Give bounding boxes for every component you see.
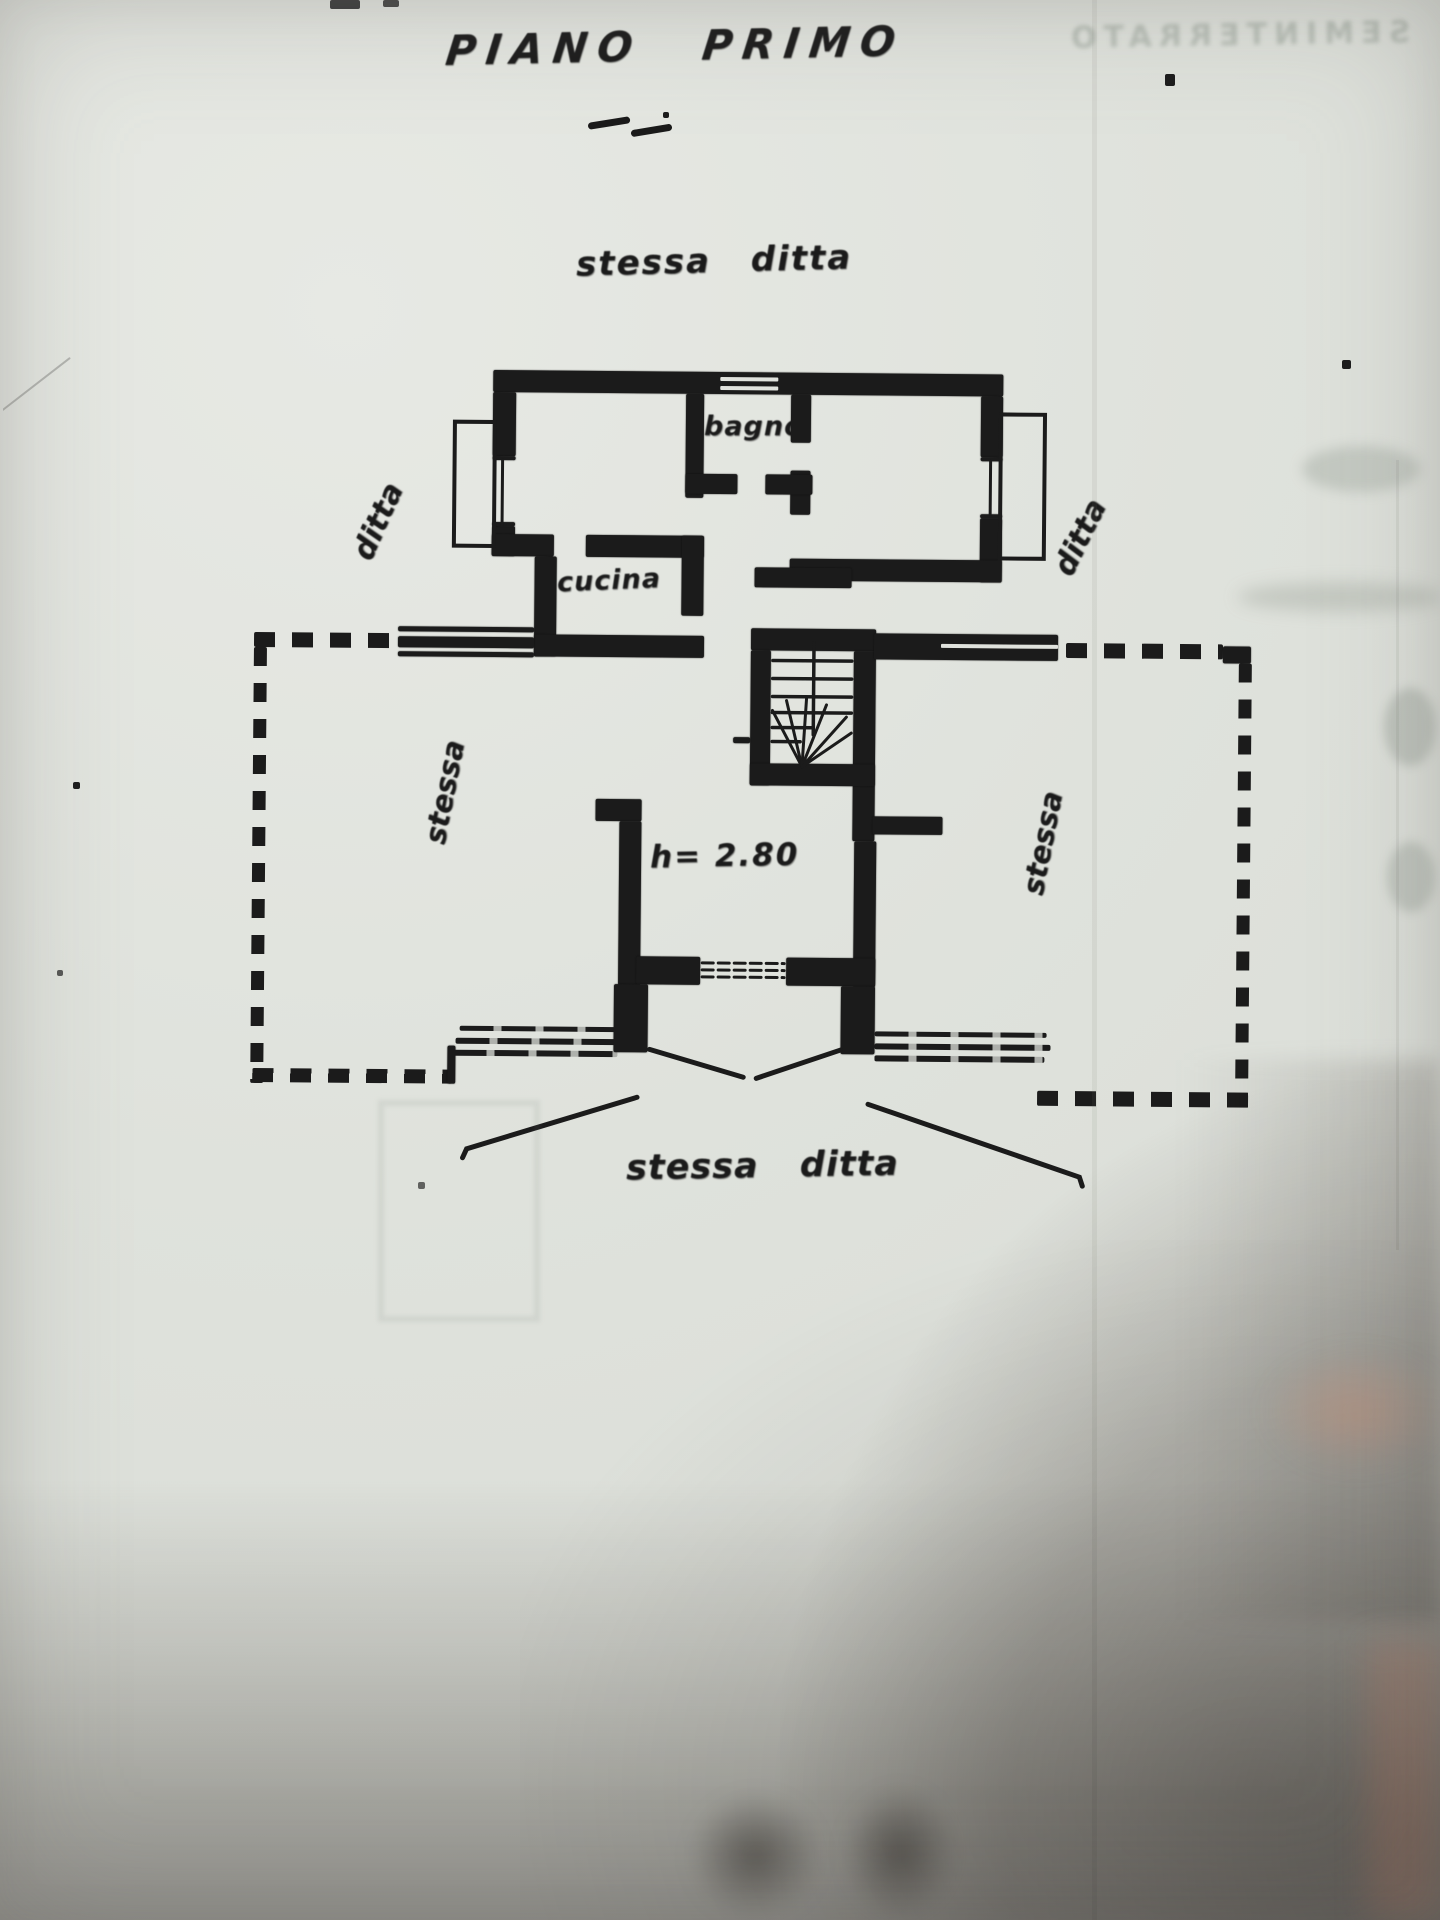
floor-plan-photo: PIANO PRIMO stessa ditta bagno cucina h=…	[0, 0, 1440, 1920]
edge-cut-mark	[330, 0, 360, 9]
page-edge-line	[1396, 460, 1399, 1250]
entrance-path-diagonals	[462, 1096, 1083, 1186]
bleed-smudge	[1384, 688, 1436, 766]
hall-door-hatching	[702, 963, 784, 978]
left-window-box	[454, 422, 495, 546]
left-window-pane-line	[502, 460, 503, 526]
right-window-box	[1000, 414, 1045, 558]
bleed-smudge	[1387, 842, 1435, 912]
staircase-treads	[772, 642, 852, 742]
plan-linework	[0, 0, 1440, 1920]
ink-speck	[1165, 74, 1175, 86]
bleed-rectangle	[378, 1100, 540, 1322]
underlying-page-corner	[3, 358, 69, 411]
edge-cut-mark	[383, 0, 399, 7]
ink-speck	[1342, 360, 1351, 369]
ink-speck	[663, 112, 669, 118]
bleed-smudge	[1238, 582, 1440, 612]
floor-plan-drawing	[0, 0, 1440, 1920]
vertical-crease	[1092, 0, 1097, 1920]
entrance-step-lines	[649, 1048, 840, 1079]
ink-speck	[73, 782, 80, 789]
ink-speck	[57, 970, 63, 976]
tilde-marks	[591, 120, 668, 134]
bleed-smudge	[1302, 446, 1420, 492]
